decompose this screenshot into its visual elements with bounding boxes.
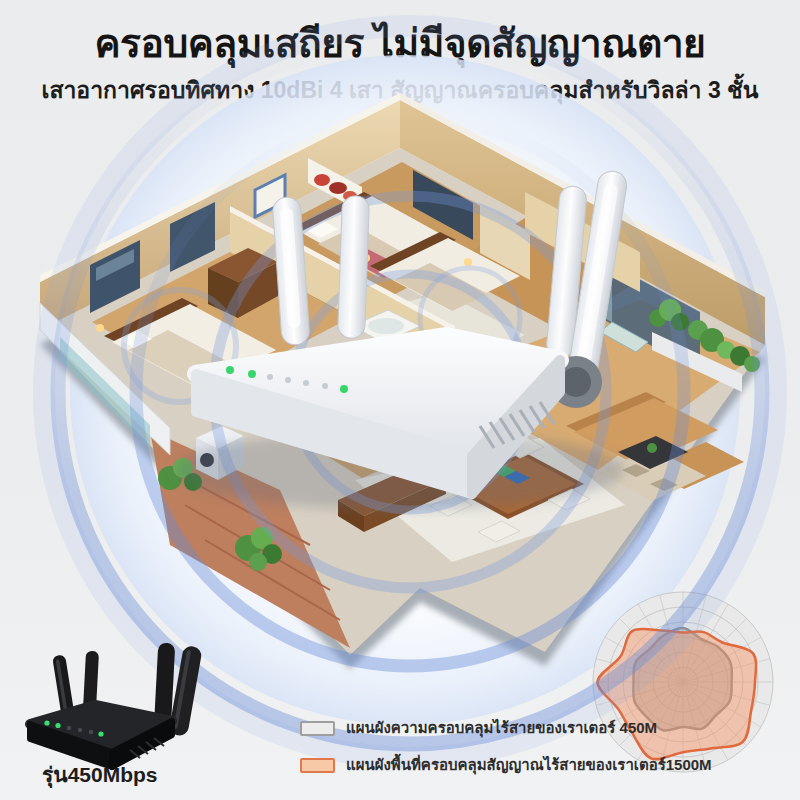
legend-label-450m: แผนผังความครอบคลุมไร้สายของเราเตอร์ 450M bbox=[346, 716, 657, 740]
legend-label-1500m: แผนผังพื้นที่ครอบคลุมสัญญาณไร้สายของเราเ… bbox=[346, 753, 712, 777]
product-poster: ครอบคลุมเสถียร ไม่มีจุดสัญญาณตาย เสาอากา… bbox=[0, 0, 800, 800]
model-label: รุ่น450Mbps bbox=[42, 758, 158, 791]
legend-row-450m: แผนผังความครอบคลุมไร้สายของเราเตอร์ 450M bbox=[300, 716, 780, 740]
art-red-blob bbox=[329, 182, 347, 194]
art-red-blob bbox=[314, 174, 330, 186]
legend-swatch-450m bbox=[300, 721, 335, 736]
antenna-hinge-core bbox=[561, 367, 591, 397]
house-illustration bbox=[0, 0, 800, 800]
coverage-legend: แผนผังความครอบคลุมไร้สายของเราเตอร์ 450M… bbox=[300, 716, 780, 790]
legend-row-1500m: แผนผังพื้นที่ครอบคลุมสัญญาณไร้สายของเราเ… bbox=[300, 753, 780, 777]
legend-swatch-1500m bbox=[300, 758, 335, 773]
antenna-2 bbox=[338, 196, 370, 339]
